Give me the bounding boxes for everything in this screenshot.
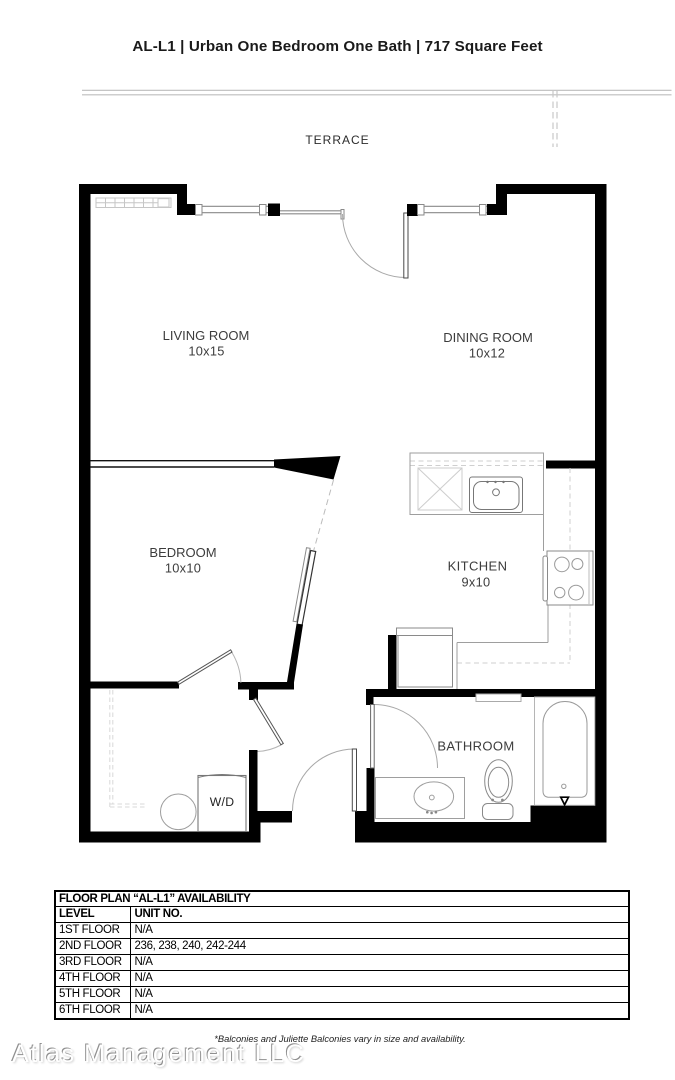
svg-text:BEDROOM: BEDROOM <box>149 545 216 560</box>
svg-text:10x10: 10x10 <box>165 561 201 576</box>
svg-text:BATHROOM: BATHROOM <box>437 739 514 754</box>
svg-text:DINING ROOM: DINING ROOM <box>443 330 533 345</box>
svg-text:TERRACE: TERRACE <box>305 133 369 147</box>
svg-text:W/D: W/D <box>210 795 235 809</box>
svg-text:10x12: 10x12 <box>469 346 505 361</box>
svg-text:10x15: 10x15 <box>188 344 224 359</box>
svg-text:KITCHEN: KITCHEN <box>448 559 508 574</box>
svg-text:9x10: 9x10 <box>462 575 491 590</box>
svg-text:LIVING ROOM: LIVING ROOM <box>163 328 250 343</box>
